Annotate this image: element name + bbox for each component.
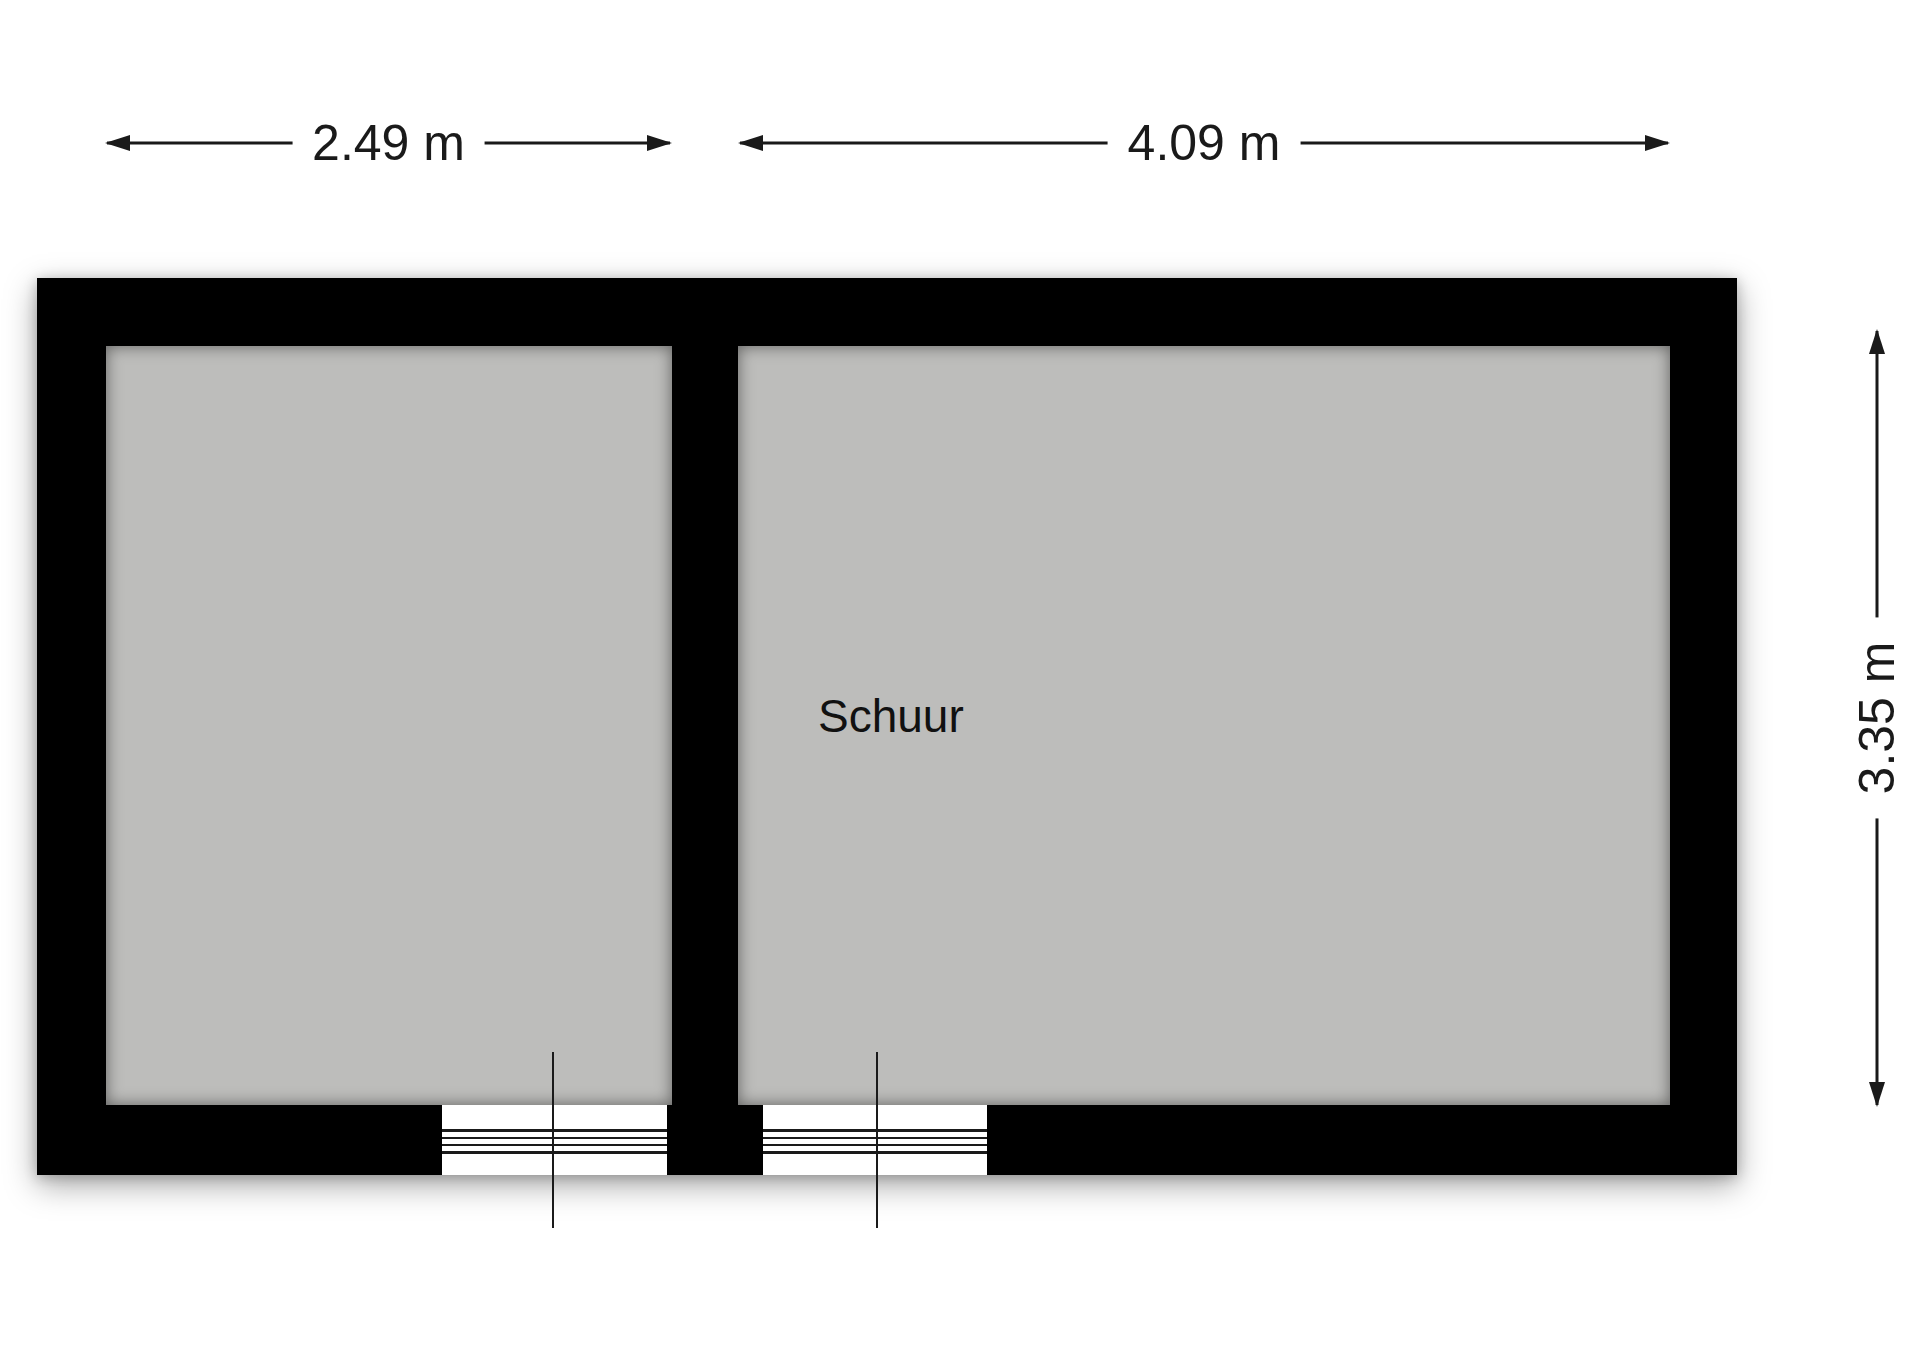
door-leaf-line-left [552,1052,554,1228]
door-opening-left [442,1105,667,1175]
room-left [106,346,672,1105]
dimension-label-top-left: 2.49 m [292,114,485,172]
door-threshold-line [442,1129,667,1132]
door-threshold-line [763,1137,987,1139]
room-schuur: Schuur [738,346,1670,1105]
dimension-arrow-down-icon [1869,1082,1885,1107]
door-threshold-line [442,1137,667,1139]
room-label-schuur: Schuur [818,689,964,743]
door-threshold-line [442,1144,667,1146]
dimension-label-top-right: 4.09 m [1108,114,1301,172]
dimension-arrow-right-icon [647,135,672,151]
building-outline: Schuur [37,278,1737,1175]
dimension-top-left: 2.49 m [105,123,672,163]
dimension-right-vertical: 3.35 m [1857,329,1897,1107]
door-threshold-line [442,1151,667,1154]
dimension-label-right: 3.35 m [1848,618,1906,819]
floorplan-canvas: 2.49 m 4.09 m 3.35 m Schuur [0,0,1920,1358]
door-threshold-line [763,1151,987,1154]
door-opening-right [763,1105,987,1175]
door-threshold-line [763,1129,987,1132]
dimension-arrow-right-icon [1645,135,1670,151]
door-threshold-line [763,1144,987,1146]
door-leaf-line-right [876,1052,878,1228]
dimension-top-right: 4.09 m [738,123,1670,163]
